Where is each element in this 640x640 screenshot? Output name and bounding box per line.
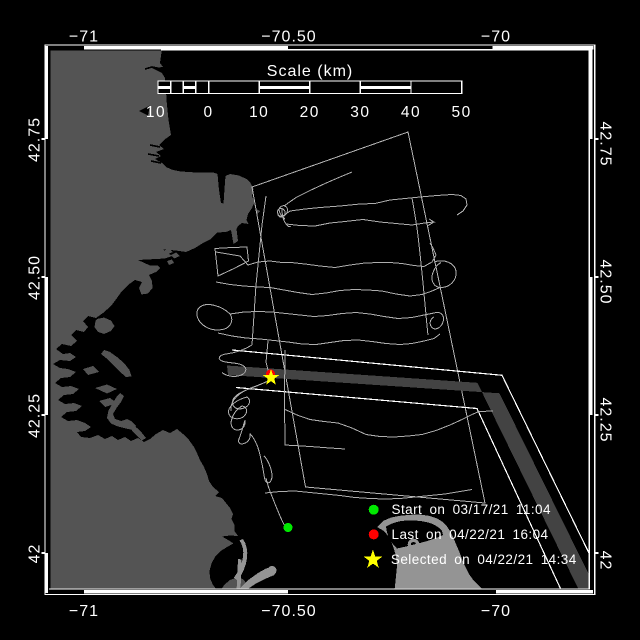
svg-text:40: 40 xyxy=(401,104,421,121)
svg-text:42.75: 42.75 xyxy=(597,121,614,166)
svg-text:−70.50: −70.50 xyxy=(261,29,316,46)
svg-text:Selected on 04/22/21 14:34: Selected on 04/22/21 14:34 xyxy=(391,552,577,567)
svg-text:30: 30 xyxy=(350,104,370,121)
svg-text:42.25: 42.25 xyxy=(597,397,614,442)
svg-text:42: 42 xyxy=(27,544,44,564)
svg-text:−70.50: −70.50 xyxy=(261,603,316,620)
svg-text:Last on 04/22/21 16:04: Last on 04/22/21 16:04 xyxy=(392,527,549,542)
svg-text:50: 50 xyxy=(451,104,471,121)
svg-text:0: 0 xyxy=(204,104,214,121)
svg-text:−71: −71 xyxy=(69,29,99,46)
svg-text:42.50: 42.50 xyxy=(597,259,614,304)
svg-text:42.25: 42.25 xyxy=(27,393,44,438)
svg-text:Scale (km): Scale (km) xyxy=(267,63,353,80)
svg-text:20: 20 xyxy=(300,104,320,121)
svg-text:Start on 03/17/21 11:04: Start on 03/17/21 11:04 xyxy=(392,502,552,517)
svg-text:−70: −70 xyxy=(481,29,511,46)
svg-text:42: 42 xyxy=(597,551,614,571)
svg-text:−71: −71 xyxy=(69,603,99,620)
svg-text:10: 10 xyxy=(146,104,166,121)
svg-text:42.50: 42.50 xyxy=(27,255,44,300)
svg-text:10: 10 xyxy=(249,104,269,121)
svg-text:42.75: 42.75 xyxy=(27,117,44,162)
svg-text:−70: −70 xyxy=(481,603,511,620)
